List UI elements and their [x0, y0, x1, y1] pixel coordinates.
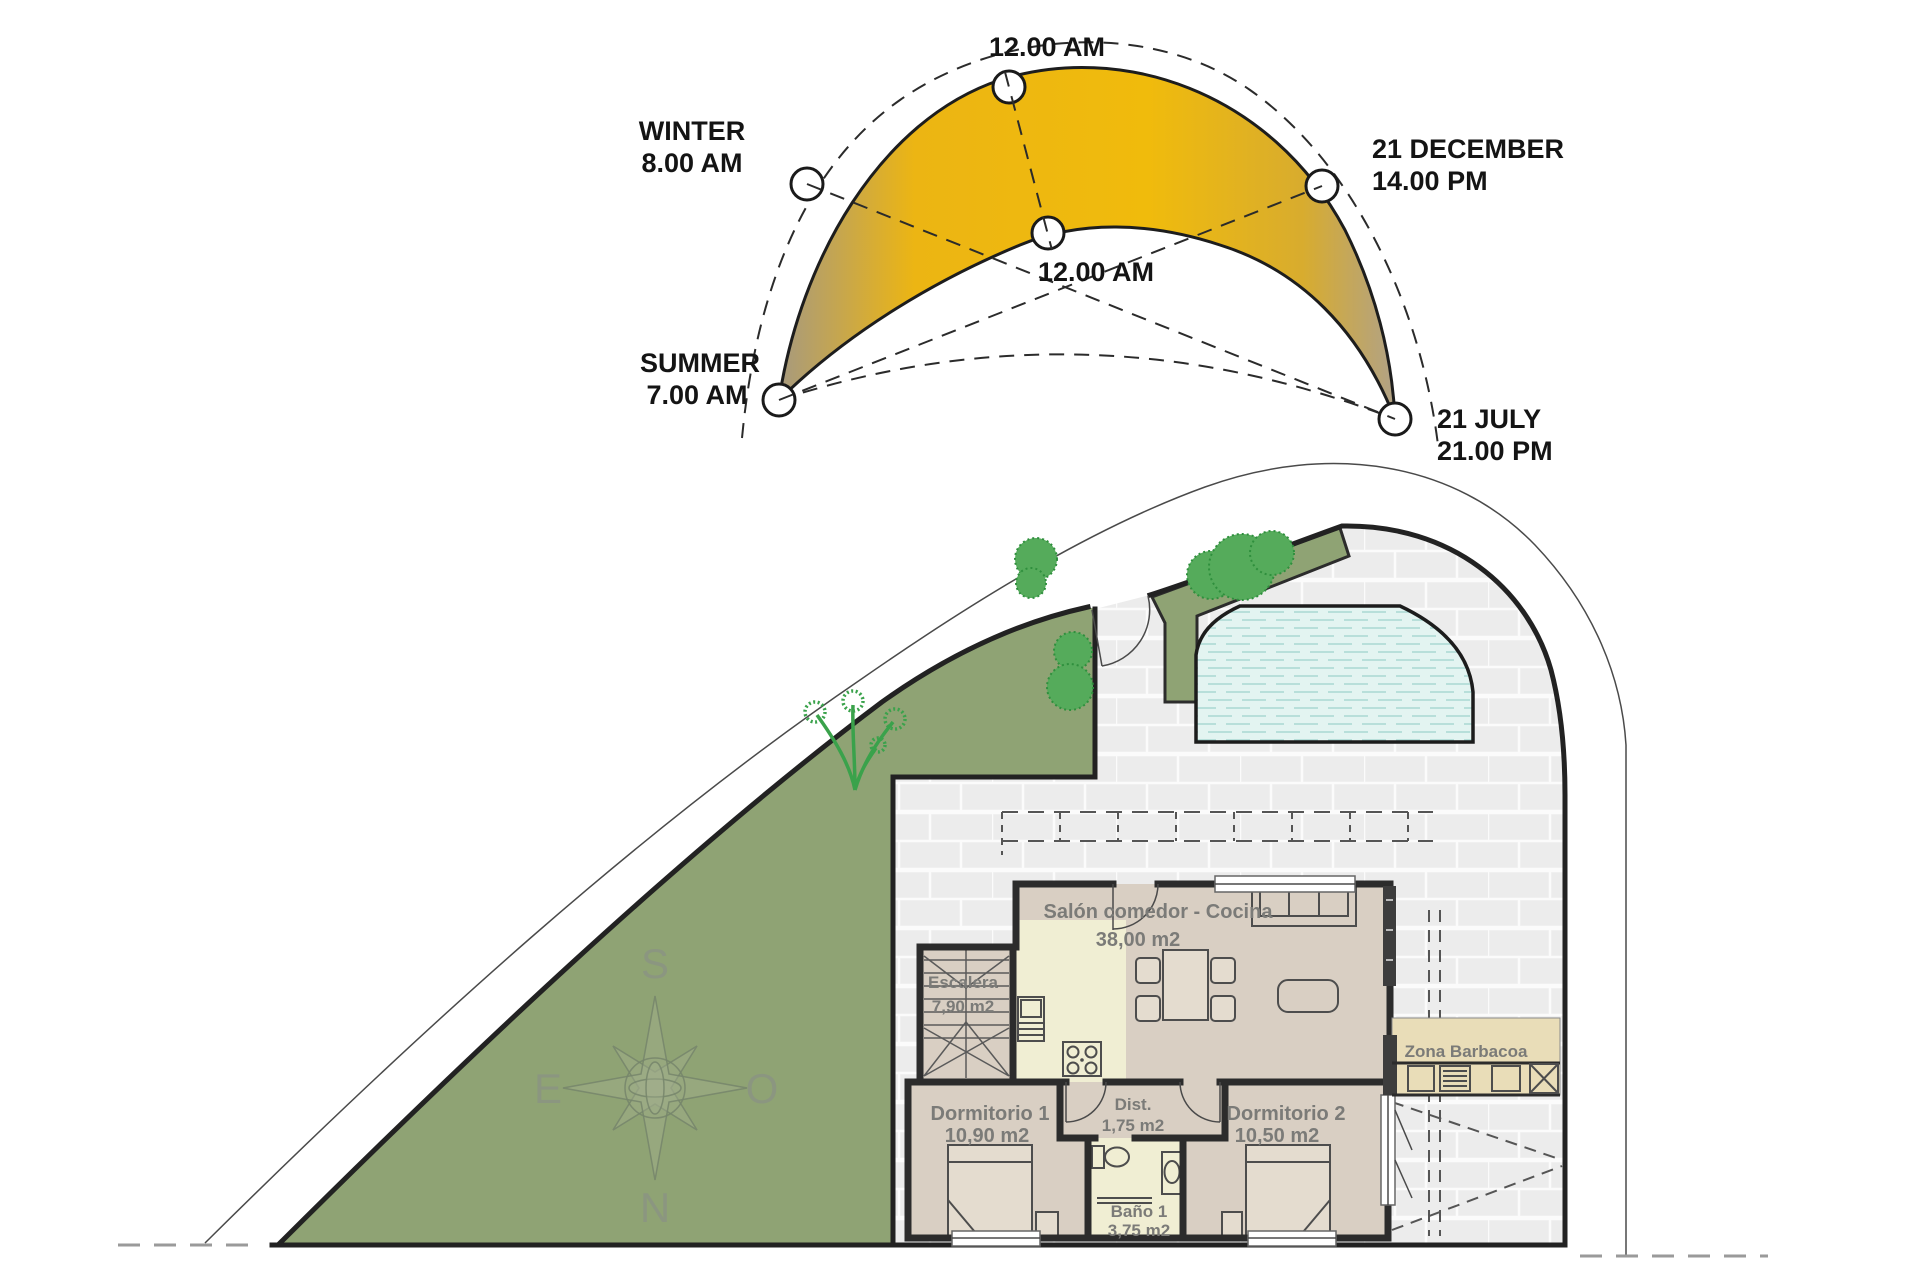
- compass-east: E: [534, 1065, 562, 1112]
- swimming-pool: [1196, 606, 1473, 742]
- marker-noon-summer: [1032, 217, 1064, 249]
- dormitorio2-name: Dormitorio 2: [1227, 1103, 1346, 1125]
- label-center-noon: 12.00 AM: [1038, 257, 1154, 287]
- label-summer-line1: SUMMER: [640, 348, 760, 378]
- bush: [1250, 531, 1294, 575]
- bano-area: 3,75 m2: [1108, 1221, 1170, 1240]
- salon-area: 38,00 m2: [1096, 929, 1181, 951]
- label-winter-line1: WINTER: [639, 116, 745, 146]
- dormitorio1-name: Dormitorio 1: [931, 1103, 1050, 1125]
- sun-crescent: [779, 67, 1395, 419]
- compass-west: O: [746, 1065, 779, 1112]
- compass-south: S: [641, 940, 669, 987]
- label-top-noon: 12.00 AM: [989, 32, 1105, 62]
- escalera-name: Escalera: [928, 973, 998, 992]
- dormitorio2-area: 10,50 m2: [1235, 1125, 1320, 1147]
- barbecue-zone: Zona Barbacoa: [1383, 1018, 1560, 1095]
- site-plan: Zona Barbacoa: [118, 464, 1768, 1256]
- compass-north: N: [640, 1184, 670, 1231]
- salon-name: Salón comedor - Cocina: [1044, 901, 1274, 923]
- plan-drawing: 12.00 AM WINTER 8.00 AM 21 DECEMBER 14.0…: [0, 0, 1920, 1280]
- bush: [1016, 568, 1046, 598]
- dist-area: 1,75 m2: [1102, 1116, 1164, 1135]
- label-december-line2: 14.00 PM: [1372, 166, 1488, 196]
- label-summer-line2: 7.00 AM: [646, 380, 747, 410]
- barbacoa-label: Zona Barbacoa: [1405, 1042, 1528, 1061]
- dist-name: Dist.: [1115, 1095, 1152, 1114]
- escalera-area: 7,90 m2: [932, 997, 994, 1016]
- bano-name: Baño 1: [1111, 1202, 1168, 1221]
- bush: [1047, 664, 1093, 710]
- label-december-line1: 21 DECEMBER: [1372, 134, 1564, 164]
- sun-path-diagram: 12.00 AM WINTER 8.00 AM 21 DECEMBER 14.0…: [639, 32, 1564, 466]
- lower-sun-arc: [779, 354, 1395, 419]
- floor-plan-page: 12.00 AM WINTER 8.00 AM 21 DECEMBER 14.0…: [0, 0, 1920, 1280]
- chimney: [1383, 1035, 1397, 1095]
- marker-noon-winter: [993, 71, 1025, 103]
- label-july-line1: 21 JULY: [1437, 404, 1541, 434]
- label-winter-line2: 8.00 AM: [641, 148, 742, 178]
- label-july-line2: 21.00 PM: [1437, 436, 1553, 466]
- dormitorio1-area: 10,90 m2: [945, 1125, 1030, 1147]
